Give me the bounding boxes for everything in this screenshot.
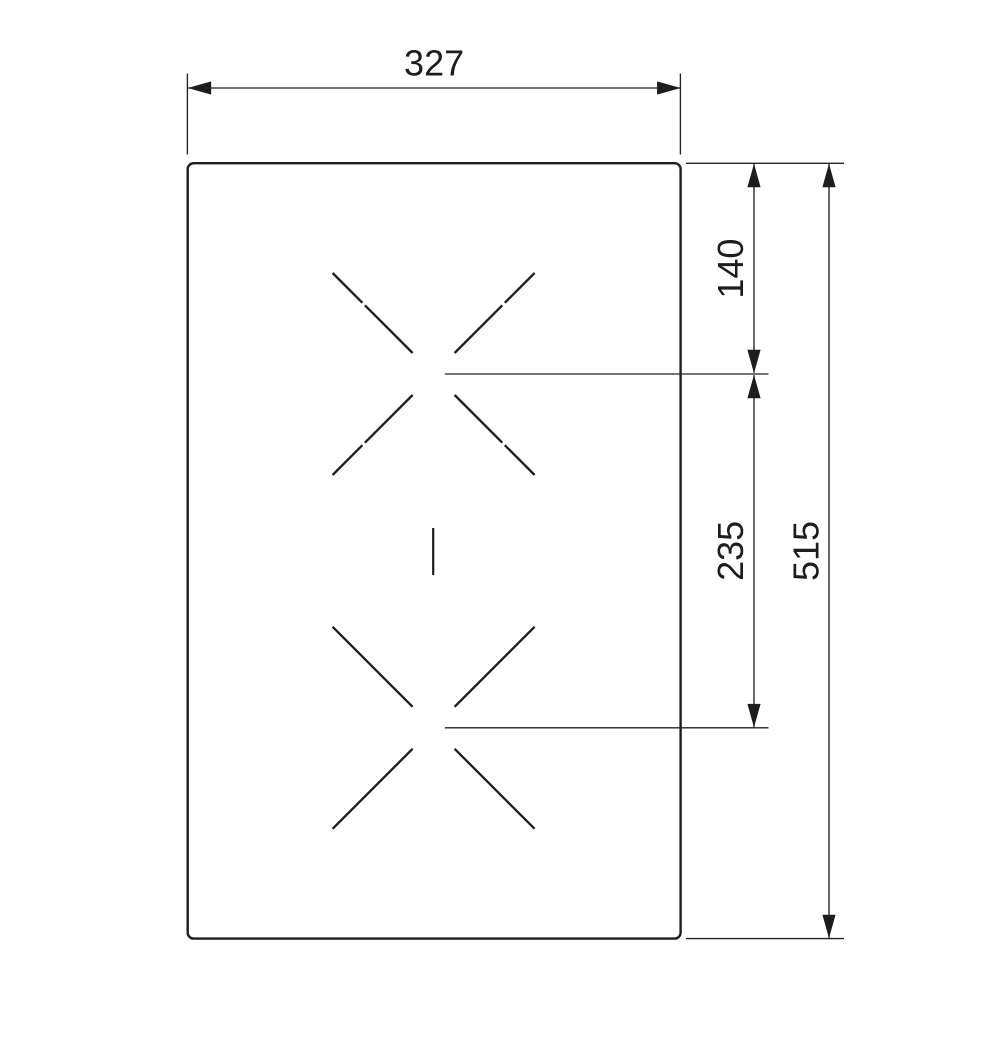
svg-text:327: 327 (404, 43, 464, 84)
svg-text:235: 235 (710, 521, 751, 581)
svg-text:515: 515 (786, 521, 827, 581)
svg-text:140: 140 (710, 239, 751, 299)
